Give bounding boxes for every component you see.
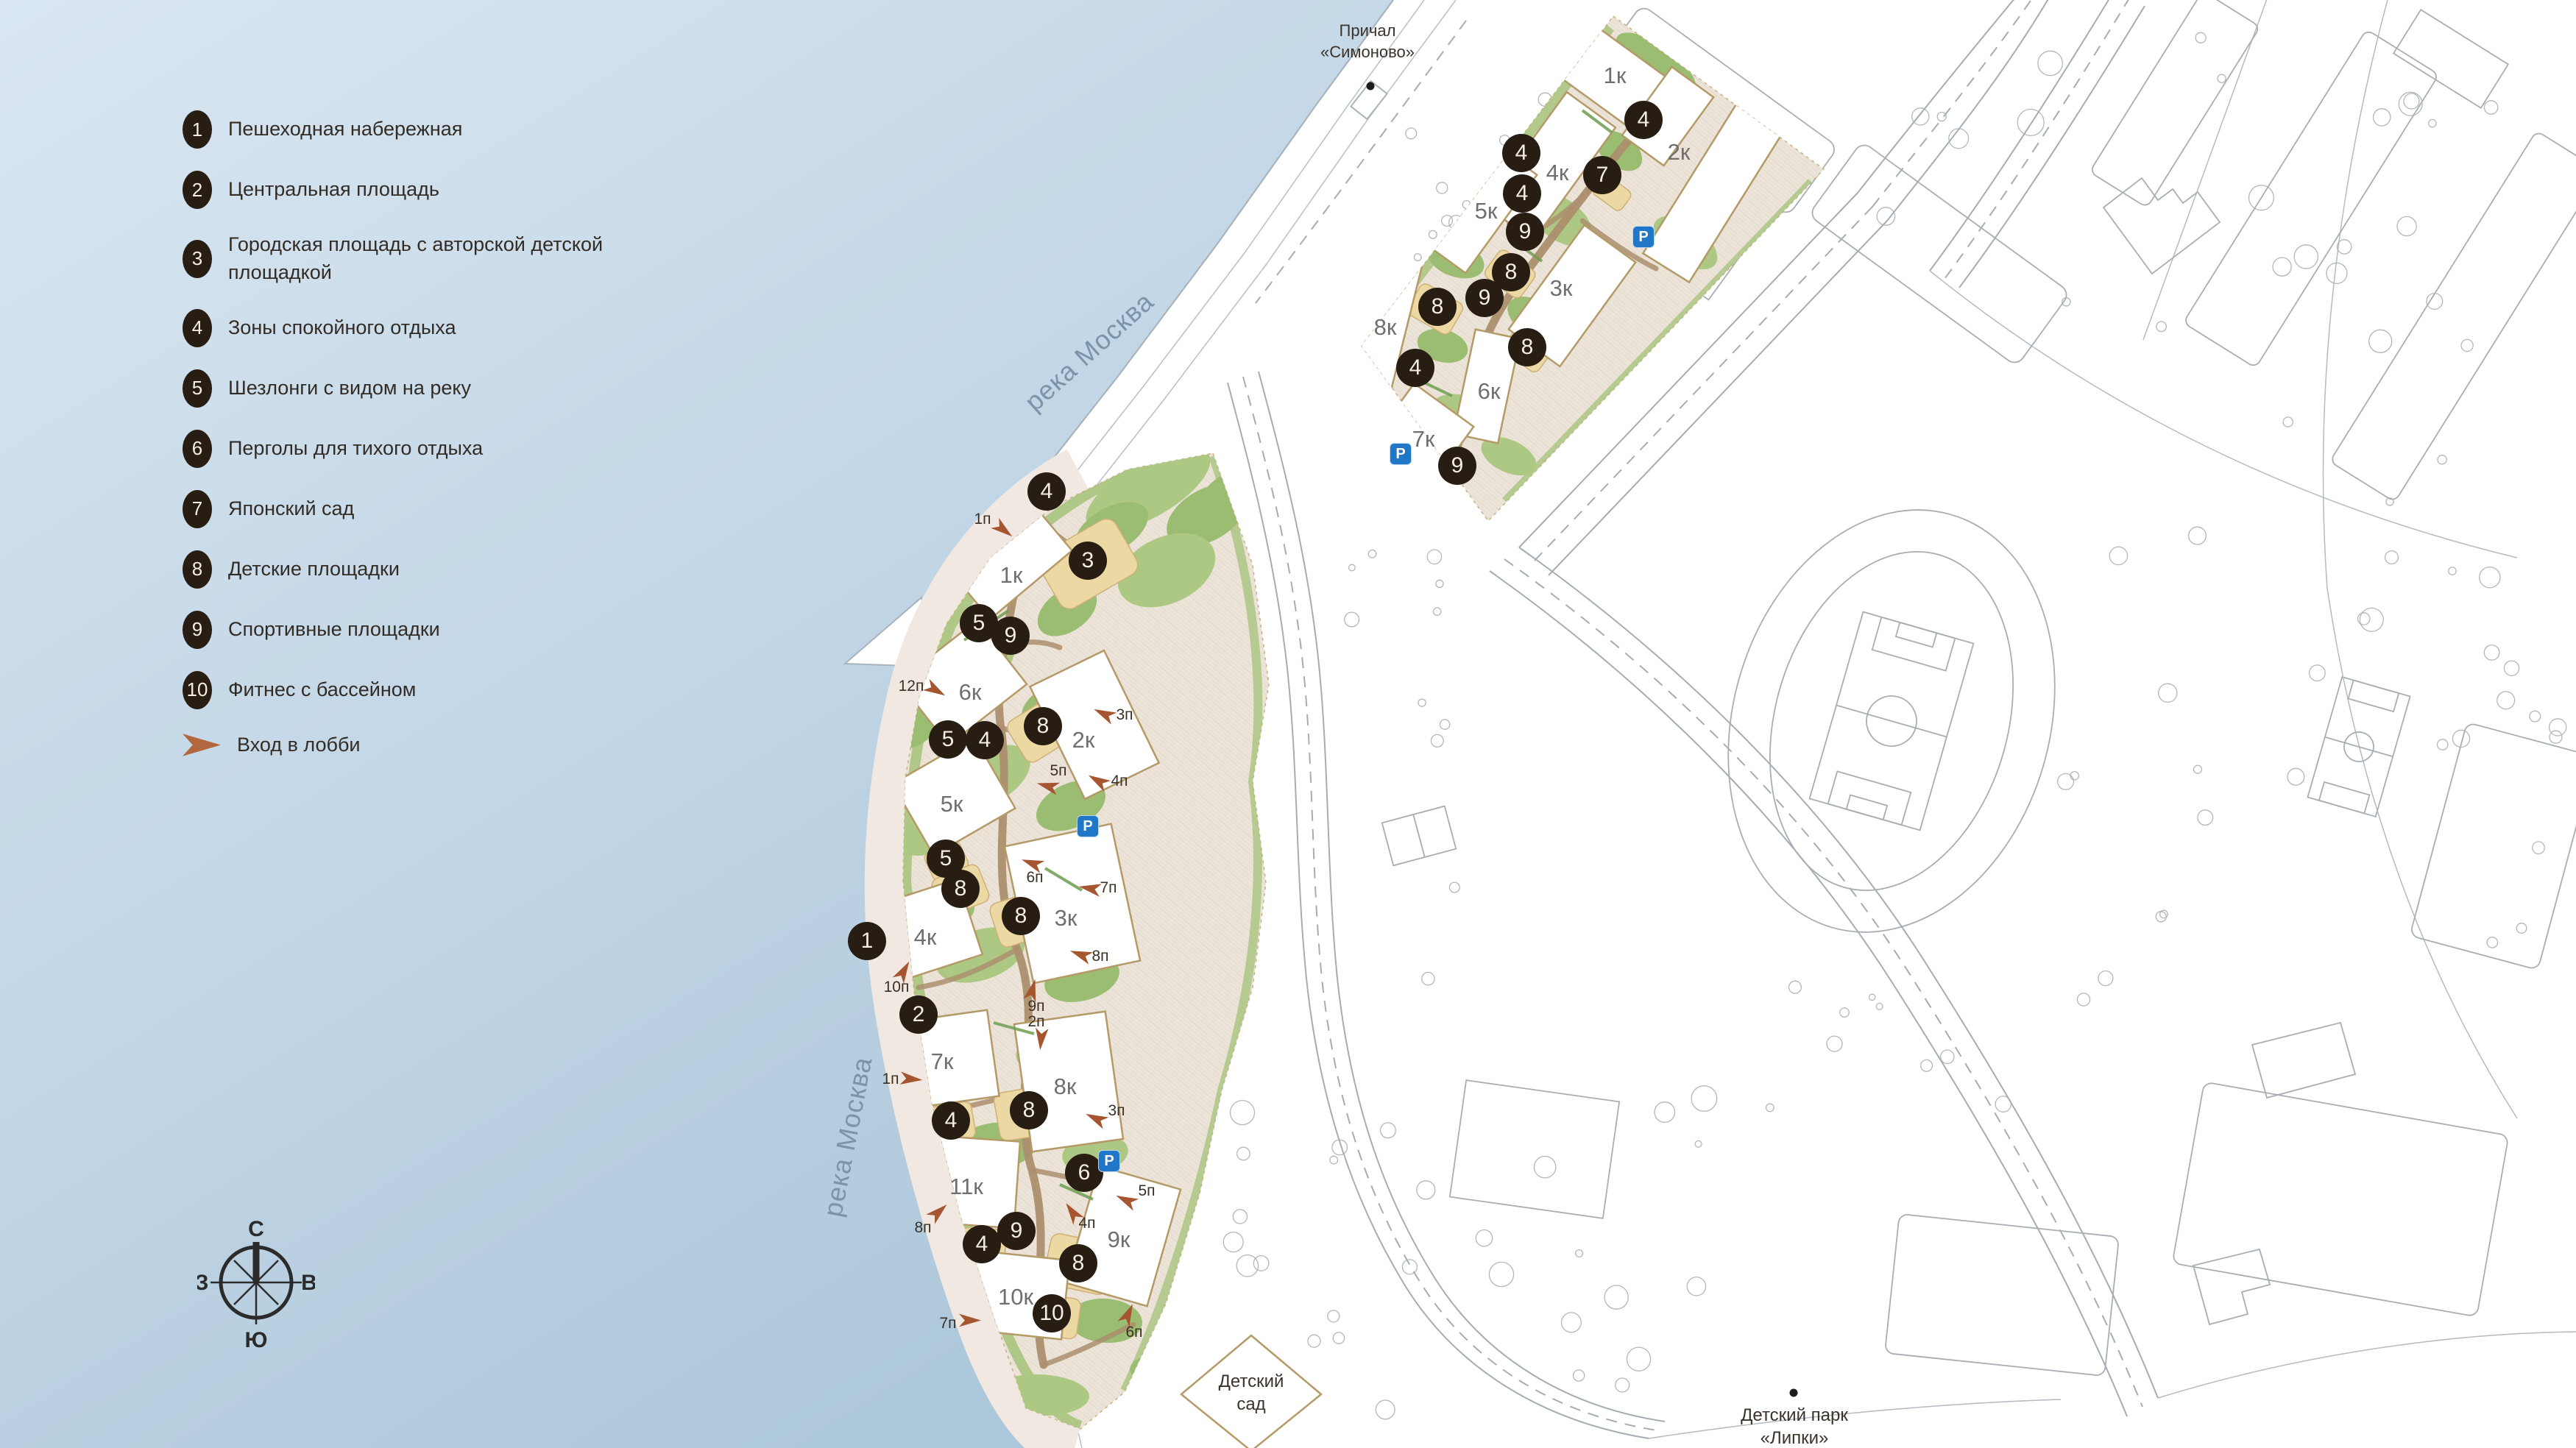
pier-label-line2: «Симоново» [1320, 42, 1415, 63]
map-marker-4[interactable]: 4 [932, 1101, 970, 1140]
building-label-1к[interactable]: 1к [1604, 63, 1627, 89]
parking-icon: P [1077, 815, 1099, 837]
park-label: Детский парк «Липки» [1741, 1404, 1848, 1448]
legend-item-10: 10Фитнес с бассейном [183, 671, 668, 709]
legend-item-5: 5Шезлонги с видом на реку [183, 369, 668, 408]
building-label-4к[interactable]: 4к [1546, 160, 1569, 186]
compass-west: З [197, 1271, 208, 1295]
entrance-arrow-12п [921, 679, 948, 705]
legend-item-label: Пешеходная набережная [228, 116, 462, 143]
map-marker-5[interactable]: 5 [929, 720, 967, 759]
map-marker-7[interactable]: 7 [1583, 156, 1621, 194]
map-marker-4[interactable]: 4 [966, 721, 1004, 759]
legend-item-label: Перголы для тихого отдыха [228, 435, 483, 463]
building-label-5к[interactable]: 5к [1475, 198, 1498, 224]
map-marker-2[interactable]: 2 [899, 995, 938, 1034]
building-label-6к[interactable]: 6к [1478, 378, 1501, 405]
map-marker-8[interactable]: 8 [941, 870, 980, 908]
map-marker-4[interactable]: 4 [1027, 472, 1066, 511]
building-label-8к[interactable]: 8к [1374, 314, 1397, 341]
entrance-arrow-3п [1083, 1104, 1111, 1129]
entrance-label-1п: 1п [974, 511, 991, 528]
entrance-arrow-1п [899, 1071, 923, 1090]
map-marker-4[interactable]: 4 [1624, 101, 1663, 139]
legend-item-9: 9Спортивные площадки [183, 611, 668, 649]
entrance-arrow-7п [959, 1314, 981, 1331]
entrance-arrow-2п [1030, 1027, 1049, 1051]
legend-item-number: 9 [183, 611, 212, 649]
building-label-6к[interactable]: 6к [959, 679, 982, 706]
park-label-line1: Детский парк [1741, 1404, 1848, 1427]
compass-south: Ю [245, 1328, 268, 1352]
entrance-label-8п: 8п [914, 1219, 931, 1237]
compass-rose: С Ю З В [197, 1213, 315, 1352]
legend-item-label: Шезлонги с видом на реку [228, 375, 471, 402]
map-marker-8[interactable]: 8 [1002, 897, 1040, 935]
map-marker-8[interactable]: 8 [1024, 707, 1062, 745]
legend-list: 1Пешеходная набережная2Центральная площа… [183, 110, 668, 709]
building-label-4к[interactable]: 4к [914, 924, 937, 951]
map-marker-1[interactable]: 1 [848, 922, 886, 960]
pier-label: Причал «Симоново» [1320, 21, 1415, 63]
masterplan-page: Причал «Симоново» река Москва река Москв… [0, 0, 2576, 1448]
entrance-label-8п: 8п [1091, 948, 1108, 965]
map-marker-9[interactable]: 9 [1506, 213, 1544, 251]
legend-item-1: 1Пешеходная набережная [183, 110, 668, 149]
entrance-label-7п: 7п [1100, 879, 1117, 897]
entrance-label-12п: 12п [899, 678, 924, 695]
building-label-3к[interactable]: 3к [1550, 275, 1573, 302]
lobby-entry-arrow-icon [183, 734, 221, 756]
entrance-arrow-4п [1085, 767, 1112, 792]
map-marker-8[interactable]: 8 [1010, 1091, 1048, 1129]
legend-item-label: Вход в лобби [237, 731, 361, 759]
park-label-line2: «Липки» [1741, 1427, 1848, 1448]
legend-item-2: 2Центральная площадь [183, 171, 668, 209]
legend-item-number: 10 [183, 671, 212, 709]
building-label-7к[interactable]: 7к [931, 1048, 954, 1075]
legend-item-3: 3Городская площадь с авторской детской п… [183, 231, 668, 287]
legend-item-8: 8Детские площадки [183, 550, 668, 589]
legend-item-number: 7 [183, 490, 212, 528]
building-label-10к[interactable]: 10к [998, 1284, 1033, 1310]
legend-item-7: 7Японский сад [183, 490, 668, 528]
building-label-2к[interactable]: 2к [1668, 139, 1691, 166]
parking-icon: P [1390, 443, 1412, 465]
building-label-8к[interactable]: 8к [1054, 1073, 1077, 1100]
entrance-label-3п: 3п [1108, 1102, 1125, 1120]
legend-item-label: Спортивные площадки [228, 616, 440, 644]
map-marker-8[interactable]: 8 [1418, 288, 1457, 326]
building-label-2к[interactable]: 2к [1072, 727, 1095, 753]
parking-icon: P [1632, 226, 1655, 248]
legend-item-label: Городская площадь с авторской детской пл… [228, 231, 640, 287]
legend-item-label: Фитнес с бассейном [228, 676, 416, 704]
pier-dot [1367, 82, 1375, 90]
map-marker-4[interactable]: 4 [963, 1225, 1001, 1263]
map-marker-4[interactable]: 4 [1503, 174, 1541, 213]
entrance-arrow-5п [1114, 1186, 1141, 1211]
entrance-arrow-8п [1068, 941, 1094, 965]
map-marker-10[interactable]: 10 [1033, 1294, 1071, 1332]
legend-item-number: 4 [183, 309, 212, 347]
legend-item-label: Центральная площадь [228, 176, 439, 204]
map-marker-9[interactable]: 9 [997, 1212, 1036, 1250]
building-label-1к[interactable]: 1к [1000, 562, 1023, 589]
map-marker-9[interactable]: 9 [1465, 279, 1504, 317]
map-marker-4[interactable]: 4 [1502, 134, 1540, 172]
kindergarten-label-line2: сад [1219, 1393, 1284, 1416]
building-label-5к[interactable]: 5к [941, 791, 963, 817]
legend-item-number: 2 [183, 171, 212, 209]
legend-item-4: 4Зоны спокойного отдыха [183, 309, 668, 347]
entrance-arrow-7п [1078, 876, 1103, 897]
river-label-lower: река Москва [817, 1054, 878, 1219]
entrance-label-1п: 1п [882, 1071, 899, 1088]
building-label-11к[interactable]: 11к [949, 1174, 983, 1200]
legend-item-number: 3 [183, 240, 212, 278]
entrance-label-3п: 3п [1116, 706, 1133, 724]
legend-item-number: 5 [183, 369, 212, 408]
kindergarten-label-line1: Детский [1219, 1370, 1284, 1393]
legend-item-label: Детские площадки [228, 556, 400, 583]
entrance-label-4п: 4п [1111, 773, 1128, 790]
kindergarten-label: Детский сад [1219, 1370, 1284, 1416]
legend-item-number: 1 [183, 110, 212, 149]
building-label-9к[interactable]: 9к [1108, 1227, 1130, 1253]
entrance-label-5п: 5п [1138, 1182, 1155, 1200]
map-marker-9[interactable]: 9 [991, 617, 1030, 655]
building-label-3к[interactable]: 3к [1055, 905, 1078, 931]
map-marker-3[interactable]: 3 [1069, 542, 1107, 580]
legend: 1Пешеходная набережная2Центральная площа… [183, 110, 668, 759]
compass-east: В [301, 1271, 315, 1295]
legend-item-label: Японский сад [228, 495, 354, 523]
entrance-arrow-3п [1091, 700, 1119, 725]
building-label-7к[interactable]: 7к [1412, 426, 1435, 452]
park-dot [1790, 1389, 1798, 1397]
legend-item-number: 8 [183, 550, 212, 589]
map-marker-8[interactable]: 8 [1508, 328, 1546, 366]
legend-item-label: Зоны спокойного отдыха [228, 314, 456, 342]
map-marker-4[interactable]: 4 [1396, 349, 1434, 387]
parking-icon: P [1098, 1150, 1120, 1172]
pier-label-line1: Причал [1320, 21, 1415, 42]
compass-north: С [248, 1217, 264, 1241]
legend-item-6: 6Перголы для тихого отдыха [183, 430, 668, 468]
entrance-arrow-1п [988, 518, 1016, 545]
legend-item-number: 6 [183, 430, 212, 468]
legend-item-lobby-entry: Вход в лобби [183, 731, 668, 759]
entrance-label-7п: 7п [939, 1315, 956, 1332]
river-label-upper: река Москва [1019, 286, 1160, 418]
map-marker-9[interactable]: 9 [1438, 447, 1476, 485]
map-marker-8[interactable]: 8 [1059, 1244, 1097, 1282]
